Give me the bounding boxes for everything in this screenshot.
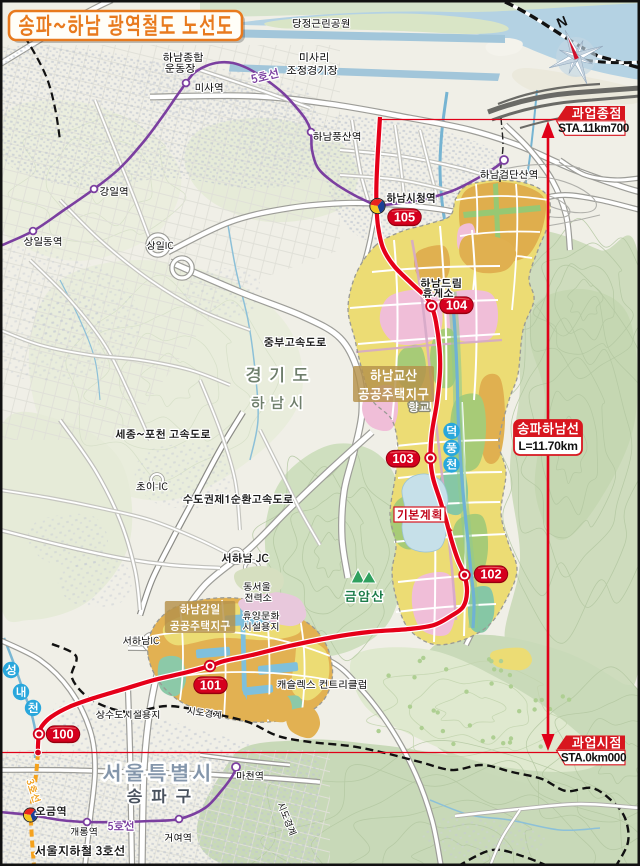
svg-text:102: 102: [480, 567, 501, 582]
svg-text:101: 101: [200, 678, 221, 693]
svg-text:STA.11km700: STA.11km700: [558, 121, 630, 135]
svg-text:L=11.70km: L=11.70km: [518, 439, 578, 453]
svg-text:STA.0km000: STA.0km000: [561, 751, 627, 765]
svg-text:100: 100: [52, 727, 73, 742]
svg-text:105: 105: [394, 210, 415, 225]
svg-text:103: 103: [392, 451, 413, 466]
svg-text:104: 104: [446, 298, 468, 313]
